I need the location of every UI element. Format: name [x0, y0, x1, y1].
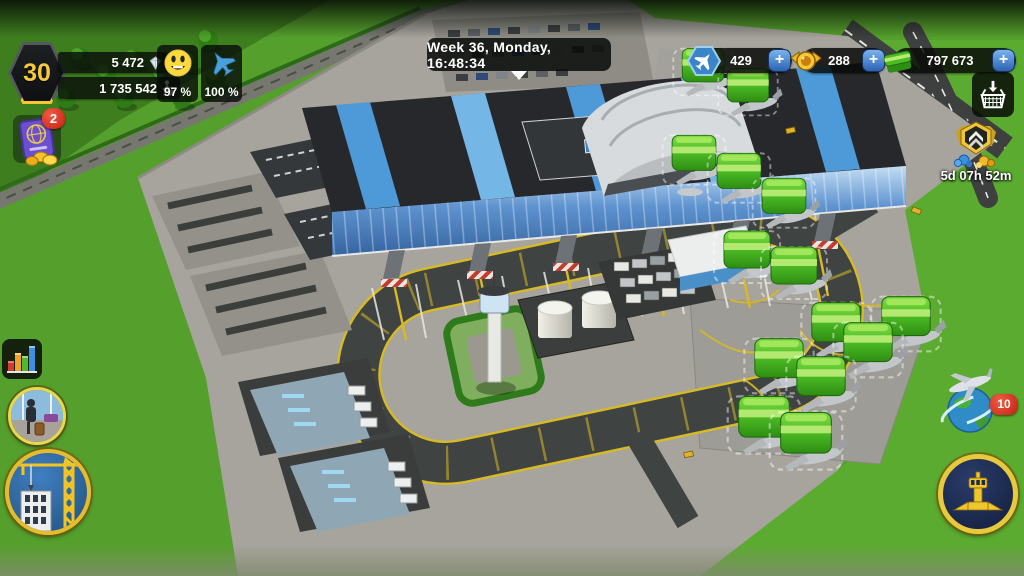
missions-badge: 2 — [42, 108, 65, 129]
bar-chart-icon — [7, 345, 37, 373]
readiness-indicator[interactable]: 100 % — [201, 45, 242, 102]
cash-add-button[interactable]: + — [992, 49, 1015, 72]
event-button[interactable] — [948, 116, 1004, 170]
flights-button[interactable]: 10 — [930, 366, 1010, 438]
medals-resource: 288 + — [802, 48, 886, 73]
basket-download-icon — [978, 79, 1008, 111]
build-button[interactable] — [5, 449, 91, 535]
level-badge-inner: 30 — [11, 45, 63, 101]
plane-icon — [207, 48, 237, 78]
statistics-button[interactable] — [2, 339, 42, 379]
passengers-value: 1 735 542 — [99, 81, 157, 96]
harbor-button[interactable] — [938, 454, 1018, 534]
gold-tower-emblem-icon — [952, 468, 1004, 520]
event-timer: 5d 07h 52m — [912, 168, 1024, 183]
gems-value: 5 472 — [111, 55, 144, 70]
rankup-shield-gems-icon — [948, 116, 1004, 170]
shop-button[interactable] — [972, 72, 1014, 117]
game-clock[interactable]: Week 36, Monday, 16:48:34 — [427, 38, 611, 71]
happiness-value: 97 % — [164, 85, 191, 99]
readiness-value: 100 % — [204, 85, 238, 99]
clock-text: Week 36, Monday, 16:48:34 — [427, 39, 611, 71]
medal-icon — [789, 44, 823, 78]
terminal-view-button[interactable] — [8, 387, 66, 445]
level-value: 30 — [23, 59, 51, 88]
gems-counter[interactable]: 5 472 — [58, 52, 168, 73]
plane-hex-icon — [687, 44, 721, 78]
smiley-icon — [163, 48, 193, 78]
happiness-indicator[interactable]: 97 % — [157, 45, 198, 102]
planes-add-button[interactable]: + — [768, 49, 791, 72]
cash-icon — [881, 44, 915, 78]
planes-resource: 429 + — [700, 48, 792, 73]
cash-resource: 797 673 + — [894, 48, 1016, 73]
construction-crane-icon — [9, 453, 87, 531]
flights-badge: 10 — [990, 394, 1018, 415]
traveler-photo-icon — [11, 390, 63, 442]
